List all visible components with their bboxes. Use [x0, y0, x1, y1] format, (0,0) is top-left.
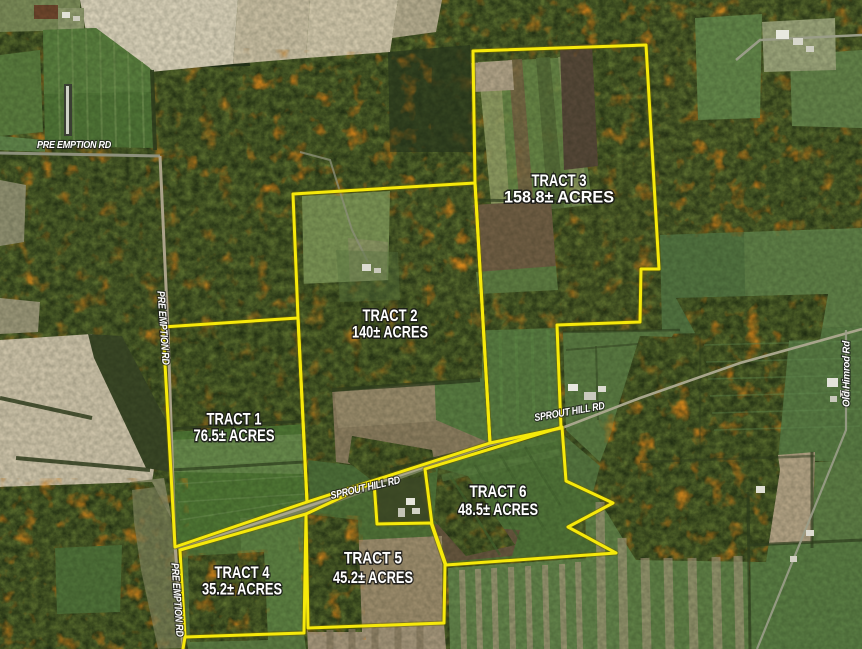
svg-text:76.5± ACRES: 76.5± ACRES [194, 427, 275, 445]
svg-text:Old Himrod Rd: Old Himrod Rd [841, 340, 853, 407]
svg-text:TRACT 6: TRACT 6 [470, 483, 527, 501]
svg-text:158.8± ACRES: 158.8± ACRES [504, 189, 614, 207]
svg-text:35.2± ACRES: 35.2± ACRES [202, 581, 282, 599]
svg-text:45.2± ACRES: 45.2± ACRES [333, 569, 413, 587]
svg-text:PRE EMPTION RD: PRE EMPTION RD [37, 139, 112, 151]
svg-text:TRACT 4: TRACT 4 [215, 564, 271, 582]
svg-text:TRACT 3: TRACT 3 [532, 172, 587, 190]
svg-text:TRACT 2: TRACT 2 [363, 307, 418, 325]
svg-text:TRACT 5: TRACT 5 [344, 550, 402, 568]
svg-text:140± ACRES: 140± ACRES [352, 324, 428, 342]
svg-text:TRACT 1: TRACT 1 [207, 411, 262, 429]
svg-text:48.5± ACRES: 48.5± ACRES [458, 501, 538, 519]
